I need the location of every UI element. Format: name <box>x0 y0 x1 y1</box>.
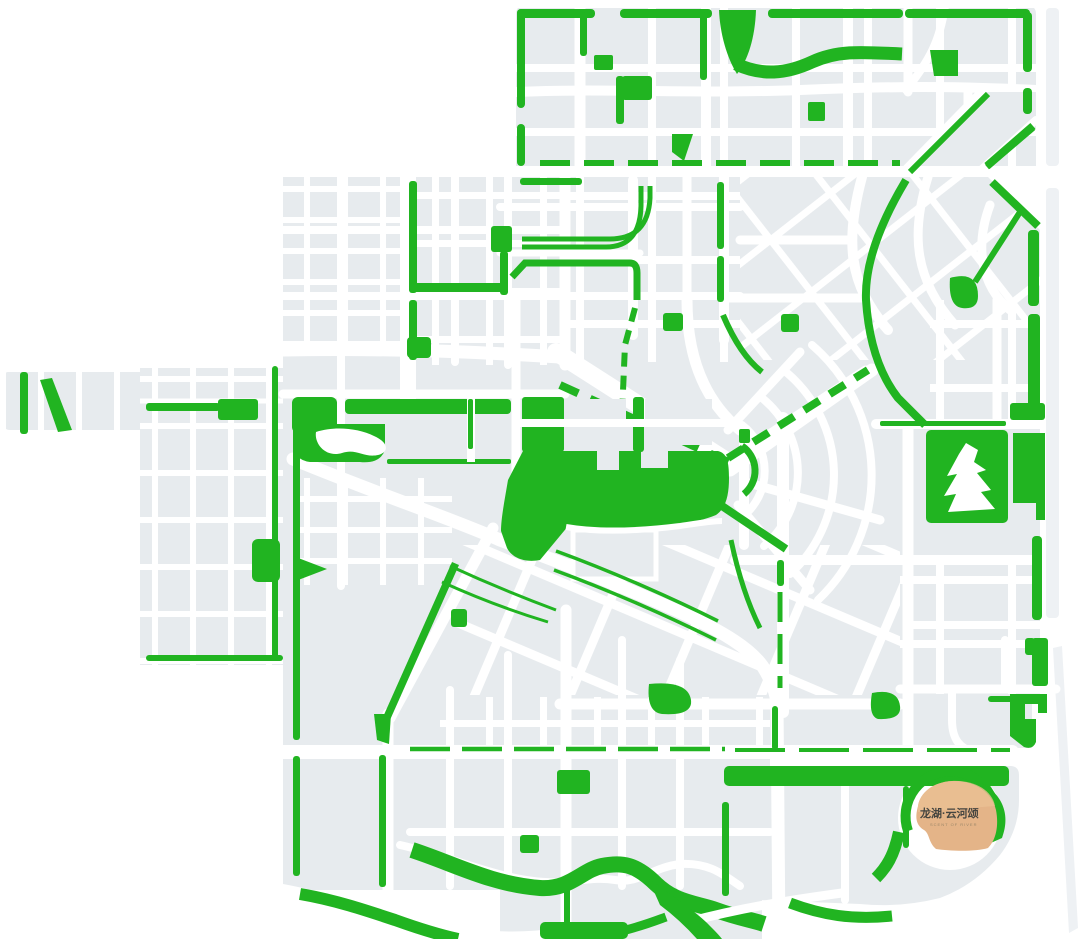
svg-text:龙湖·云河颂: 龙湖·云河颂 <box>919 806 979 820</box>
svg-text:SCENT OF RIVER: SCENT OF RIVER <box>930 822 978 827</box>
